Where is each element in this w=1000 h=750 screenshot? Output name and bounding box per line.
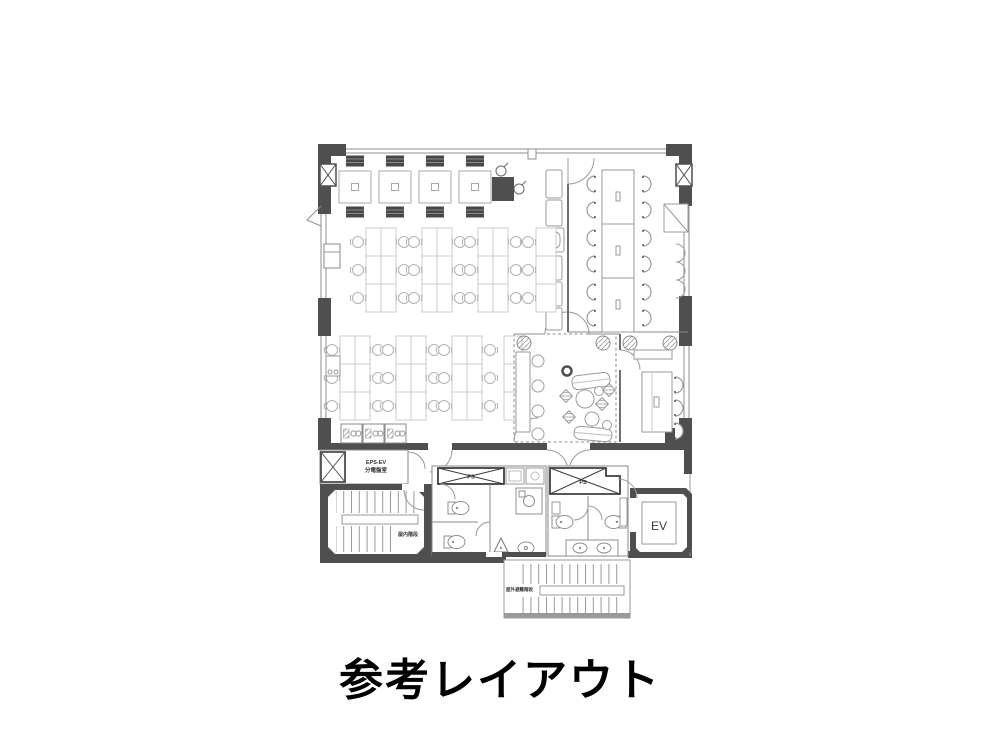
- elevator-label: EV: [651, 519, 667, 533]
- copier: [492, 177, 514, 201]
- nook-table: [642, 372, 672, 432]
- plant-icon: [496, 166, 506, 176]
- top-meeting-tables: [339, 156, 526, 218]
- outdoor-staircase: 屋外避難階段: [504, 560, 630, 618]
- meeting-nook: [634, 350, 683, 439]
- conference-area: [542, 170, 688, 332]
- indoor-staircase: 屋内階段: [320, 484, 432, 562]
- page-title: 参考レイアウト: [0, 644, 1000, 708]
- service-area: EPS-EV 分電盤室 屋内階段 PS: [320, 450, 692, 562]
- restroom-right: PS: [548, 466, 628, 556]
- distribution-board-room-label: 分電盤室: [365, 466, 388, 474]
- plant-icon: [514, 184, 524, 194]
- cabinet-row: [341, 424, 406, 443]
- ps-label: PS: [467, 475, 475, 481]
- outdoor-staircase-label: 屋外避難階段: [506, 586, 533, 593]
- shelf: [634, 350, 672, 359]
- lounge-table: [576, 390, 594, 408]
- lounge-counter: [516, 352, 530, 432]
- indoor-staircase-label: 屋内階段: [398, 531, 418, 538]
- printer: [324, 244, 340, 268]
- ps-shaft-top-right: [676, 164, 692, 186]
- lounge-stool-dark: [563, 367, 572, 376]
- eps-ev-label: EPS-EV: [366, 460, 387, 466]
- lounge-table: [585, 412, 599, 426]
- floor-plan-drawing: EPS-EV 分電盤室 屋内階段 PS: [0, 0, 1000, 750]
- restroom-middle: PS: [432, 466, 546, 557]
- conference-tables: [602, 170, 634, 332]
- floor-plan-page: EPS-EV 分電盤室 屋内階段 PS: [0, 0, 1000, 750]
- eps-room: EPS-EV 分電盤室: [320, 450, 408, 484]
- ps-shaft-top-left: [320, 164, 336, 186]
- elevator-room: EV: [618, 479, 692, 558]
- ps-label: PS: [579, 480, 587, 486]
